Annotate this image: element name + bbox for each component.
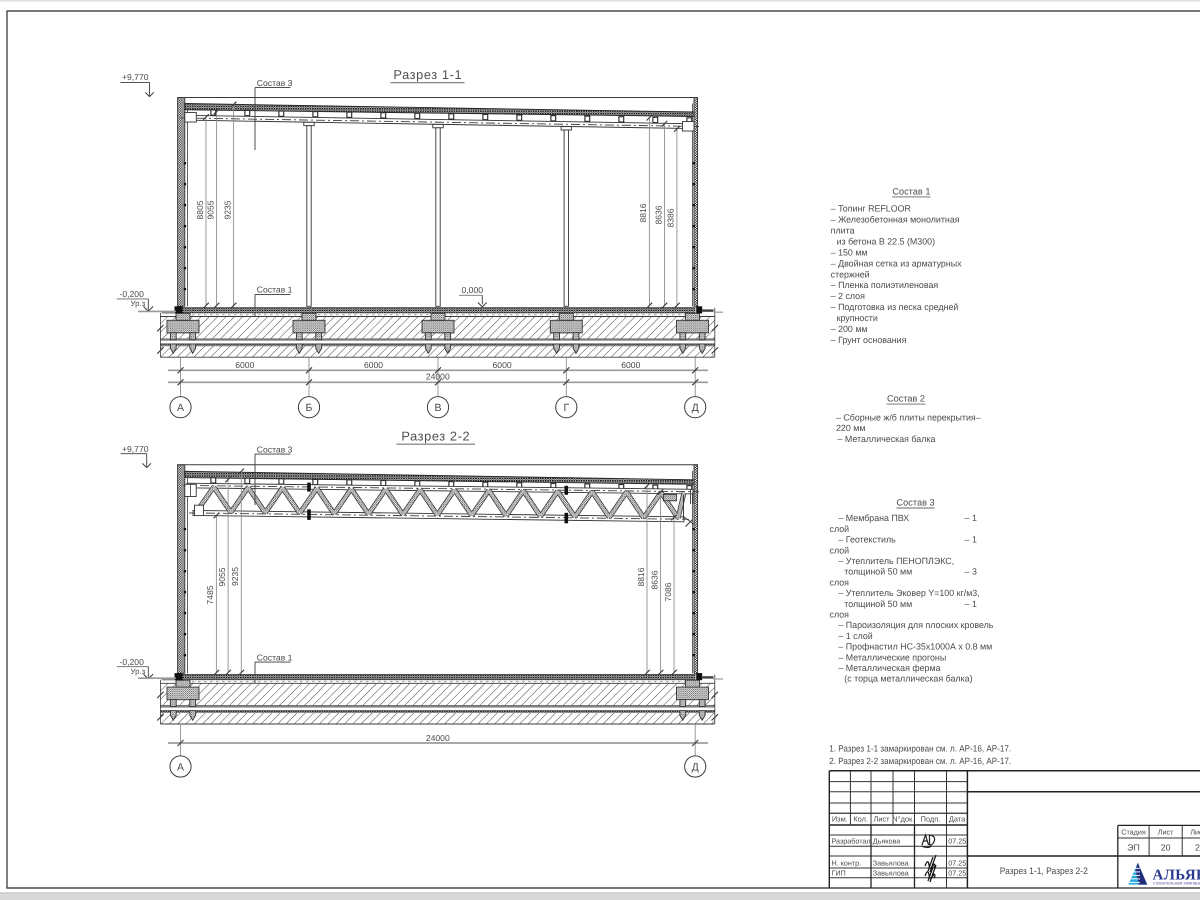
svg-text:– 2 слоя: – 2 слоя [831, 291, 865, 301]
svg-text:– Профнастил НС-35х1000А х 0.8: – Профнастил НС-35х1000А х 0.8 мм [838, 642, 992, 652]
svg-text:– Топинг REFLOOR: – Топинг REFLOOR [831, 204, 912, 214]
svg-text:– Металлическая балка: – Металлическая балка [837, 434, 935, 444]
svg-text:Лис: Лис [1190, 828, 1200, 837]
svg-text:– Пленка полиэтиленовая: – Пленка полиэтиленовая [831, 280, 939, 290]
svg-text:– 1: – 1 [965, 599, 977, 609]
svg-text:7485: 7485 [205, 585, 215, 604]
svg-text:8805: 8805 [195, 200, 205, 219]
svg-text:07.25: 07.25 [948, 837, 966, 846]
svg-text:(с торца металлическая балка): (с торца металлическая балка) [844, 674, 972, 684]
svg-text:07.25: 07.25 [948, 858, 966, 867]
svg-text:Кол.: Кол. [853, 815, 868, 824]
svg-text:Д: Д [692, 402, 699, 414]
svg-text:N°док.: N°док. [892, 815, 914, 824]
svg-text:Разработал: Разработал [832, 837, 871, 846]
svg-text:Г: Г [563, 402, 569, 414]
svg-text:плита: плита [831, 226, 855, 236]
svg-text:Состав 3: Состав 3 [897, 498, 935, 508]
svg-text:6000: 6000 [621, 360, 640, 370]
svg-text:– Железобетонная монолитная: – Железобетонная монолитная [831, 215, 960, 225]
svg-text:+9,770: +9,770 [122, 444, 149, 454]
svg-text:Состав 1: Состав 1 [257, 652, 293, 662]
svg-text:6000: 6000 [364, 360, 383, 370]
svg-text:– Пароизоляция для плоских кро: – Пароизоляция для плоских кровель [838, 620, 993, 630]
svg-text:+9,770: +9,770 [122, 72, 149, 82]
svg-text:– 1 слой: – 1 слой [838, 631, 872, 641]
svg-text:Дата: Дата [949, 815, 966, 824]
svg-text:-0,200: -0,200 [120, 657, 145, 667]
svg-text:8636: 8636 [653, 205, 663, 224]
svg-text:Состав 1: Состав 1 [257, 285, 293, 295]
svg-text:Д: Д [692, 761, 699, 773]
svg-text:из бетона В 22.5 (М300): из бетона В 22.5 (М300) [837, 236, 935, 246]
svg-text:24000: 24000 [426, 733, 450, 743]
svg-text:В: В [434, 402, 441, 414]
svg-text:220 мм: 220 мм [836, 423, 865, 433]
svg-text:2: 2 [1195, 843, 1200, 853]
svg-text:Состав 1: Состав 1 [892, 187, 930, 197]
svg-text:слоя: слоя [830, 610, 850, 620]
svg-text:Лист: Лист [873, 815, 890, 824]
svg-text:– Утеплитель ПЕНОПЛЭКС,: – Утеплитель ПЕНОПЛЭКС, [838, 556, 954, 566]
svg-text:Состав 3: Состав 3 [257, 444, 293, 454]
svg-text:Б: Б [306, 402, 313, 414]
svg-text:– 1: – 1 [965, 535, 977, 545]
svg-text:6000: 6000 [235, 360, 254, 370]
svg-text:9055: 9055 [205, 200, 215, 219]
svg-text:А: А [177, 402, 184, 414]
svg-text:8386: 8386 [666, 208, 676, 227]
svg-text:20: 20 [1161, 843, 1171, 853]
svg-text:стержней: стержней [831, 269, 870, 279]
svg-text:– Геотекстиль: – Геотекстиль [838, 535, 896, 545]
svg-text:24000: 24000 [426, 372, 450, 382]
svg-text:толщиной 50 мм: толщиной 50 мм [844, 567, 912, 577]
svg-text:Подп.: Подп. [921, 815, 941, 824]
svg-text:Завьялова: Завьялова [873, 858, 909, 867]
svg-text:Н. контр.: Н. контр. [832, 858, 862, 867]
svg-text:Лист: Лист [1158, 828, 1174, 837]
svg-text:толщиной 50 мм: толщиной 50 мм [844, 599, 912, 609]
svg-text:Разрез 1-1, Разрез 2-2: Разрез 1-1, Разрез 2-2 [1000, 865, 1088, 876]
svg-text:9235: 9235 [222, 200, 232, 219]
svg-text:Завьялова: Завьялова [873, 869, 909, 878]
svg-text:ГИП: ГИП [832, 869, 846, 878]
svg-text:8816: 8816 [638, 203, 648, 222]
svg-text:крупности: крупности [837, 313, 878, 323]
svg-text:Разрез 2-2: Разрез 2-2 [401, 429, 470, 444]
svg-text:9235: 9235 [230, 567, 240, 586]
svg-text:8636: 8636 [649, 570, 659, 589]
svg-text:Состав 2: Состав 2 [887, 394, 925, 404]
svg-text:1. Разрез 1-1 замаркирован см.: 1. Разрез 1-1 замаркирован см. л. АР-16,… [829, 744, 1011, 754]
svg-text:8816: 8816 [636, 567, 646, 586]
svg-text:– Двойная сетка из арматурных: – Двойная сетка из арматурных [831, 258, 962, 268]
svg-text:– Металлические прогоны: – Металлические прогоны [838, 652, 946, 662]
svg-text:– 3: – 3 [965, 567, 977, 577]
svg-text:А: А [177, 761, 184, 773]
svg-text:– 150 мм: – 150 мм [831, 247, 868, 257]
svg-text:2. Разрез 2-2 замаркирован см.: 2. Разрез 2-2 замаркирован см. л. АР-16,… [829, 756, 1011, 766]
svg-text:Разрез 1-1: Разрез 1-1 [393, 67, 462, 82]
svg-text:– Утеплитель Эковер Y=100 кг/м: – Утеплитель Эковер Y=100 кг/м3, [838, 588, 979, 598]
svg-text:– Грунт основания: – Грунт основания [831, 335, 907, 345]
svg-text:– Подготовка из песка средней: – Подготовка из песка средней [831, 302, 959, 312]
svg-text:9055: 9055 [217, 567, 227, 586]
svg-text:слоя: слоя [830, 577, 850, 587]
svg-text:– Сборные ж/б плиты перекрытия: – Сборные ж/б плиты перекрытия– [836, 412, 981, 422]
svg-text:Дьякова: Дьякова [873, 837, 900, 846]
svg-text:– Металлическая ферма: – Металлическая ферма [838, 663, 940, 673]
svg-text:слой: слой [830, 524, 850, 534]
svg-text:– 1: – 1 [965, 513, 977, 523]
svg-text:слой: слой [830, 545, 850, 555]
svg-text:ЭП: ЭП [1127, 843, 1140, 853]
svg-text:Состав 3: Состав 3 [257, 78, 293, 88]
svg-text:– 200 мм: – 200 мм [831, 324, 868, 334]
svg-text:0,000: 0,000 [462, 285, 484, 295]
svg-text:6000: 6000 [493, 360, 512, 370]
svg-text:Изм.: Изм. [832, 815, 848, 824]
svg-text:07.25: 07.25 [948, 869, 966, 878]
svg-text:7086: 7086 [663, 582, 673, 601]
svg-text:Стадия: Стадия [1121, 828, 1146, 837]
svg-text:-0,200: -0,200 [120, 289, 145, 299]
svg-text:– Мембрана ПВХ: – Мембрана ПВХ [838, 513, 909, 523]
svg-text:строительная компания: строительная компания [1153, 880, 1200, 885]
